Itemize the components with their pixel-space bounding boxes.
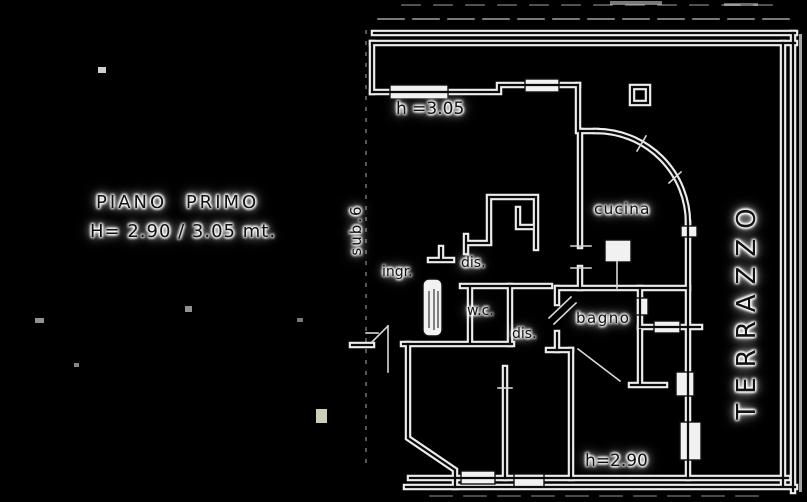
scan-speck [74, 363, 79, 367]
height-annotation-upper: h =3.05 [396, 99, 464, 119]
room-label-hall-2: dis. [512, 326, 537, 342]
scan-speck [316, 409, 327, 423]
room-label-entrance: ingr. [382, 264, 413, 280]
height-annotation-lower: h=2.90 [585, 451, 648, 471]
room-label-bathroom: bagno [576, 309, 630, 327]
scan-speck [185, 306, 192, 312]
room-label-terrace: TERRAZZO [732, 189, 762, 429]
room-label-hall-1: dis. [461, 255, 486, 271]
floor-title: PIANO PRIMO [96, 192, 259, 213]
scan-speck [98, 67, 106, 73]
room-label-toilet: w.c. [467, 303, 494, 319]
room-label-stairwell: sub.6 [347, 195, 365, 265]
scan-speck [297, 318, 303, 322]
scan-speck [610, 1, 662, 5]
scan-speck [35, 318, 44, 323]
room-label-kitchen: cucina [594, 200, 651, 218]
floor-heights-note: H= 2.90 / 3.05 mt. [90, 221, 276, 242]
scanned-floorplan-page: PIANO PRIMO H= 2.90 / 3.05 mt. h =3.05 h… [0, 0, 807, 502]
floorplan-drawing [0, 0, 807, 502]
door-and-tick-lines [366, 136, 681, 388]
scan-speck [724, 3, 758, 6]
